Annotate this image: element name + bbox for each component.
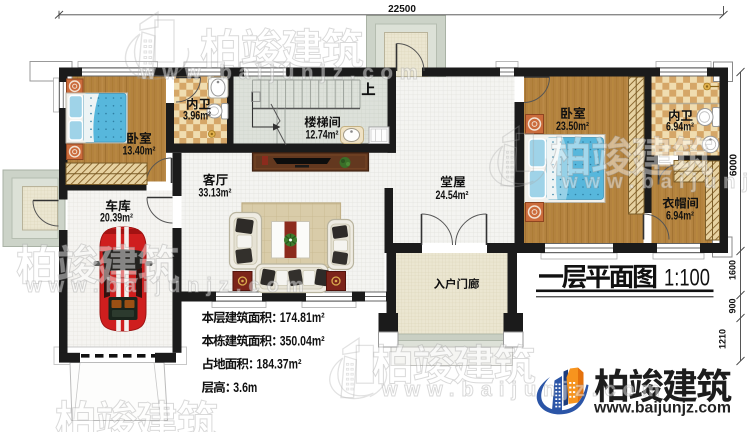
svg-text:www.baijunjz.com: www.baijunjz.com	[139, 62, 425, 84]
svg-text:12.74m²: 12.74m²	[306, 130, 339, 142]
svg-text:1600: 1600	[728, 260, 738, 280]
svg-text:900: 900	[728, 298, 738, 313]
svg-text:20.39m²: 20.39m²	[100, 213, 133, 225]
svg-text:www.baijunjz.com: www.baijunjz.com	[561, 171, 750, 193]
svg-text:174.81m²: 174.81m²	[280, 310, 325, 325]
svg-text:24.54m²: 24.54m²	[436, 190, 469, 202]
svg-text:13.40m²: 13.40m²	[123, 146, 156, 158]
svg-text:3.96m²: 3.96m²	[183, 111, 211, 123]
svg-text:3.6m: 3.6m	[233, 380, 257, 395]
svg-text:23.50m²: 23.50m²	[556, 121, 589, 133]
svg-text:www.baijunjz.com: www.baijunjz.com	[593, 400, 731, 417]
svg-text:1:100: 1:100	[664, 265, 710, 292]
svg-text:350.04m²: 350.04m²	[280, 333, 325, 348]
svg-text:184.37m²: 184.37m²	[257, 356, 302, 371]
svg-text:22500: 22500	[388, 4, 416, 15]
svg-text:1210: 1210	[718, 329, 728, 349]
svg-text:6.94m²: 6.94m²	[666, 211, 694, 223]
svg-text:www.baijunjz.com: www.baijunjz.com	[381, 379, 667, 401]
svg-text:33.13m²: 33.13m²	[199, 188, 232, 200]
svg-text:www.baijunjz.com: www.baijunjz.com	[25, 275, 311, 297]
svg-text:6.94m²: 6.94m²	[666, 122, 694, 134]
